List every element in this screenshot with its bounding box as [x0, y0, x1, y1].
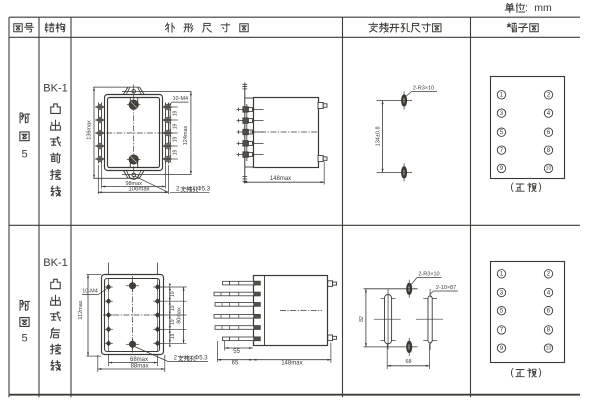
- svg-text:6: 6: [547, 308, 551, 315]
- svg-text:4: 4: [547, 110, 551, 117]
- svg-text:7: 7: [500, 147, 504, 154]
- svg-text:mm: mm: [534, 2, 552, 14]
- svg-text:3: 3: [500, 110, 504, 117]
- svg-text:3: 3: [500, 289, 504, 296]
- svg-text:5: 5: [21, 332, 27, 344]
- svg-text:112max: 112max: [78, 300, 84, 319]
- svg-text:): ): [538, 368, 541, 379]
- svg-text:106max: 106max: [128, 187, 149, 193]
- svg-text:10: 10: [546, 345, 552, 351]
- svg-text:5: 5: [500, 308, 504, 315]
- svg-text:4: 4: [547, 289, 551, 296]
- svg-text:55: 55: [233, 349, 240, 355]
- svg-text:19: 19: [173, 150, 179, 156]
- svg-text:): ): [538, 182, 541, 193]
- svg-text:10: 10: [546, 166, 552, 172]
- svg-text:19: 19: [170, 319, 176, 325]
- svg-text:134±0.8: 134±0.8: [375, 126, 381, 146]
- svg-text:124max: 124max: [183, 125, 189, 145]
- svg-text:Φ5.3: Φ5.3: [194, 356, 208, 362]
- svg-text:148max: 148max: [281, 360, 302, 366]
- svg-text:2-10×87: 2-10×87: [436, 285, 456, 291]
- svg-text:2-R3×10: 2-R3×10: [418, 271, 439, 277]
- svg-text:2: 2: [547, 92, 551, 99]
- svg-text:148max: 148max: [270, 176, 291, 182]
- svg-text:68max: 68max: [130, 357, 148, 363]
- svg-text:80max: 80max: [176, 307, 182, 324]
- svg-text:2: 2: [547, 271, 551, 278]
- svg-text:6: 6: [547, 129, 551, 136]
- svg-text:8: 8: [547, 147, 551, 154]
- svg-text:2-R3×10: 2-R3×10: [413, 85, 434, 91]
- svg-text:8: 8: [547, 327, 551, 334]
- svg-text:5: 5: [21, 148, 27, 160]
- svg-text:1: 1: [500, 271, 504, 278]
- svg-text:9: 9: [500, 165, 504, 172]
- svg-text:10-M4: 10-M4: [82, 288, 98, 294]
- svg-text:65: 65: [232, 361, 239, 367]
- svg-text:19: 19: [170, 333, 176, 339]
- svg-text:82: 82: [359, 316, 365, 322]
- svg-text:19: 19: [170, 305, 176, 311]
- svg-text:88max: 88max: [131, 363, 149, 369]
- svg-text:7: 7: [500, 327, 504, 334]
- svg-text:5: 5: [500, 129, 504, 136]
- svg-text:19: 19: [173, 124, 179, 130]
- svg-text:19: 19: [173, 137, 179, 143]
- svg-text:BK-1: BK-1: [43, 257, 67, 269]
- svg-text:136max: 136max: [87, 120, 93, 140]
- svg-text:Φ5.3: Φ5.3: [197, 186, 211, 192]
- svg-text:19: 19: [170, 291, 176, 297]
- svg-text:BK-1: BK-1: [43, 83, 67, 95]
- svg-text:68: 68: [405, 359, 411, 365]
- svg-text:10-M4: 10-M4: [173, 96, 189, 102]
- svg-text:9: 9: [500, 345, 504, 352]
- svg-text::: :: [525, 3, 528, 14]
- svg-text:1: 1: [500, 92, 504, 99]
- svg-text:19: 19: [173, 111, 179, 117]
